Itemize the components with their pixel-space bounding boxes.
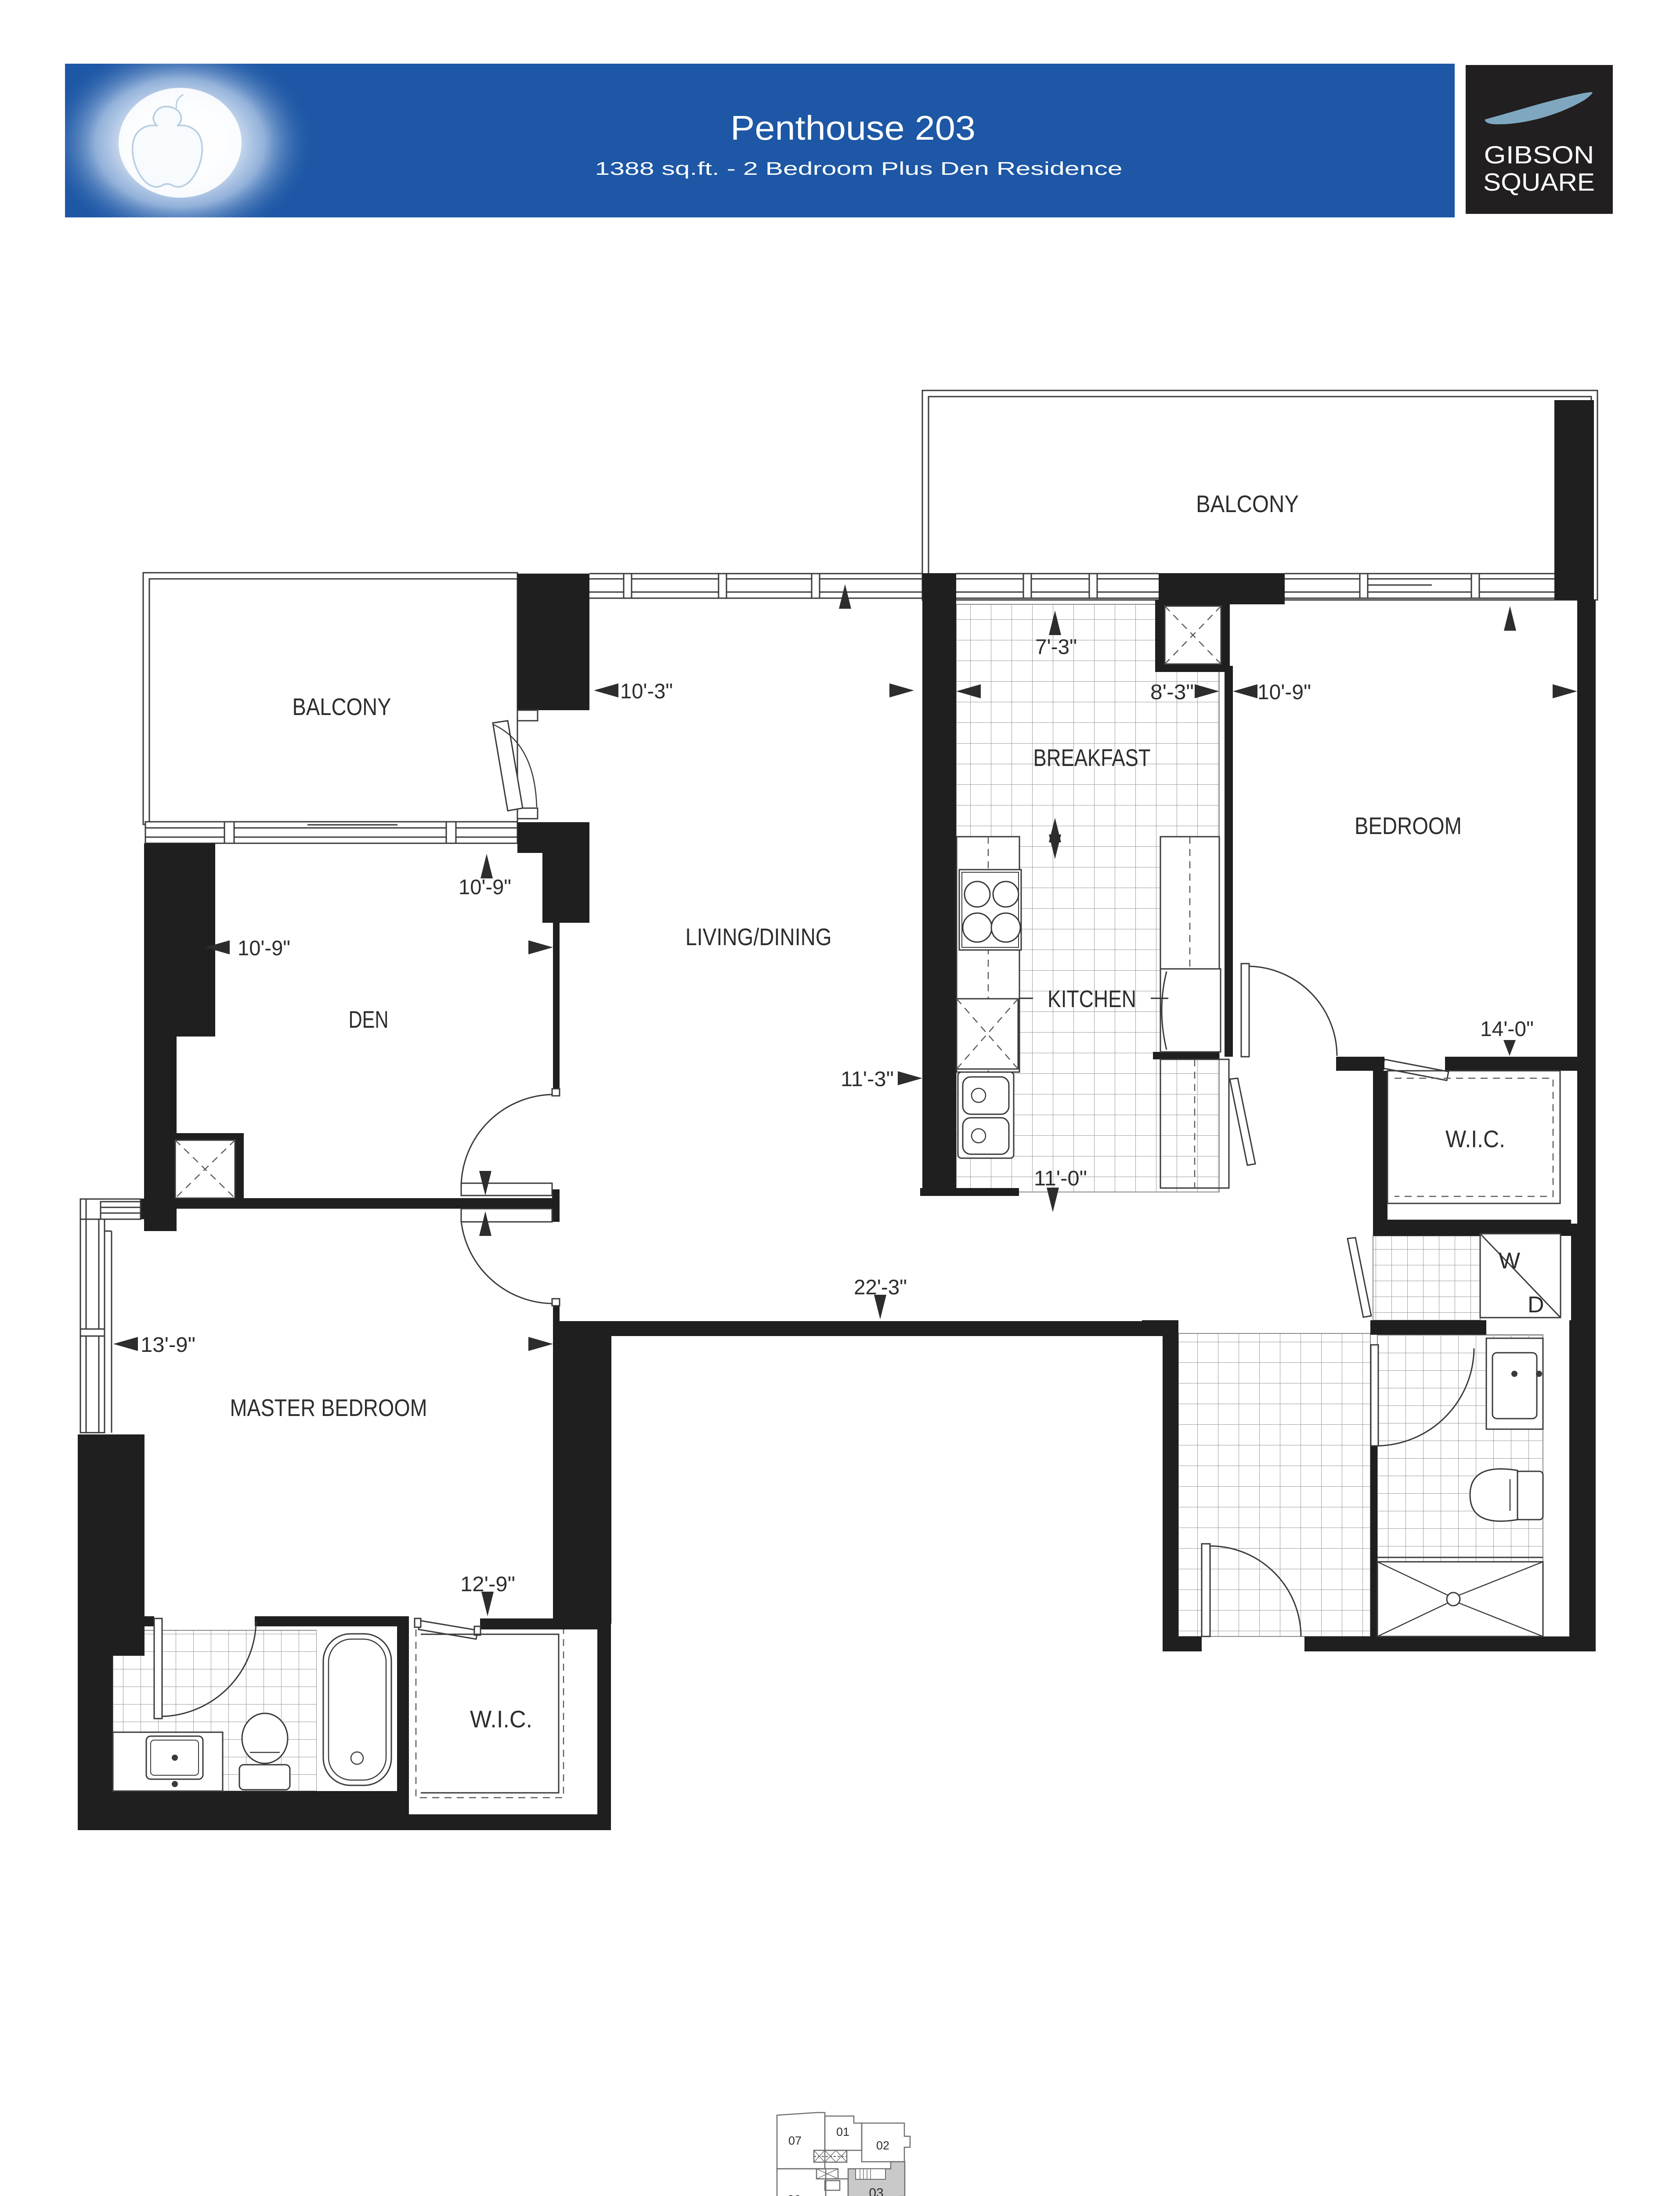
svg-text:D: D: [1528, 1292, 1544, 1318]
svg-text:GIBSON: GIBSON: [1484, 141, 1594, 169]
svg-text:1388 sq.ft. - 2 Bedroom Plus D: 1388 sq.ft. - 2 Bedroom Plus Den Residen…: [595, 158, 1123, 179]
svg-text:LIVING/DINING: LIVING/DINING: [686, 923, 832, 950]
svg-text:10'-9": 10'-9": [238, 937, 290, 960]
svg-text:11'-0": 11'-0": [1034, 1167, 1087, 1190]
svg-text:BEDROOM: BEDROOM: [1355, 812, 1462, 839]
svg-text:11'-3": 11'-3": [841, 1068, 894, 1091]
svg-text:BALCONY: BALCONY: [1196, 490, 1299, 517]
svg-text:07: 07: [788, 2134, 802, 2147]
svg-text:W.I.C.: W.I.C.: [470, 1705, 532, 1733]
svg-text:01: 01: [836, 2125, 849, 2138]
svg-text:13'-9": 13'-9": [141, 1333, 195, 1357]
svg-text:W: W: [1499, 1248, 1520, 1274]
svg-text:Penthouse 203: Penthouse 203: [730, 108, 975, 147]
svg-text:06: 06: [788, 2193, 801, 2196]
svg-text:03: 03: [869, 2186, 883, 2196]
svg-text:8'-3": 8'-3": [1150, 681, 1194, 704]
svg-text:10'-9": 10'-9": [459, 876, 511, 899]
svg-text:BREAKFAST: BREAKFAST: [1033, 744, 1151, 771]
svg-text:SQUARE: SQUARE: [1483, 168, 1595, 196]
svg-text:DEN: DEN: [349, 1006, 389, 1033]
svg-text:BALCONY: BALCONY: [293, 693, 391, 720]
svg-text:10'-3": 10'-3": [620, 680, 673, 703]
svg-text:14'-0": 14'-0": [1480, 1018, 1534, 1041]
svg-text:02: 02: [876, 2139, 889, 2152]
svg-text:W.I.C.: W.I.C.: [1445, 1125, 1505, 1152]
svg-text:MASTER BEDROOM: MASTER BEDROOM: [230, 1394, 427, 1421]
svg-text:10'-9": 10'-9": [1257, 681, 1311, 704]
svg-text:7'-3": 7'-3": [1035, 636, 1077, 659]
svg-text:KITCHEN: KITCHEN: [1048, 985, 1136, 1012]
